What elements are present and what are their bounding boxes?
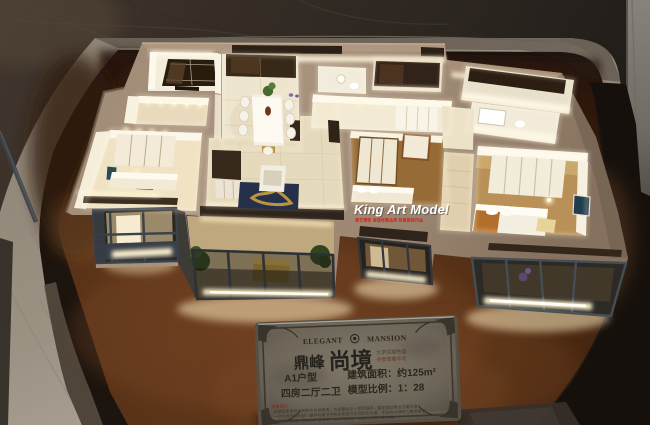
- svg-text:ELEGANT: ELEGANT: [303, 336, 343, 347]
- svg-text:央景宽奢华宅: 央景宽奢华宅: [376, 355, 406, 363]
- svg-text:King Art Model: King Art Model: [354, 202, 449, 217]
- svg-text:港艺模型 诚信经营品质 创意装饰作品: 港艺模型 诚信经营品质 创意装饰作品: [355, 217, 423, 223]
- svg-text:鼎峰: 鼎峰: [293, 352, 325, 372]
- svg-text:A1户型: A1户型: [284, 371, 317, 385]
- svg-text:九学区醇熟盛: 九学区醇熟盛: [376, 348, 406, 356]
- svg-text:MANSION: MANSION: [367, 333, 407, 344]
